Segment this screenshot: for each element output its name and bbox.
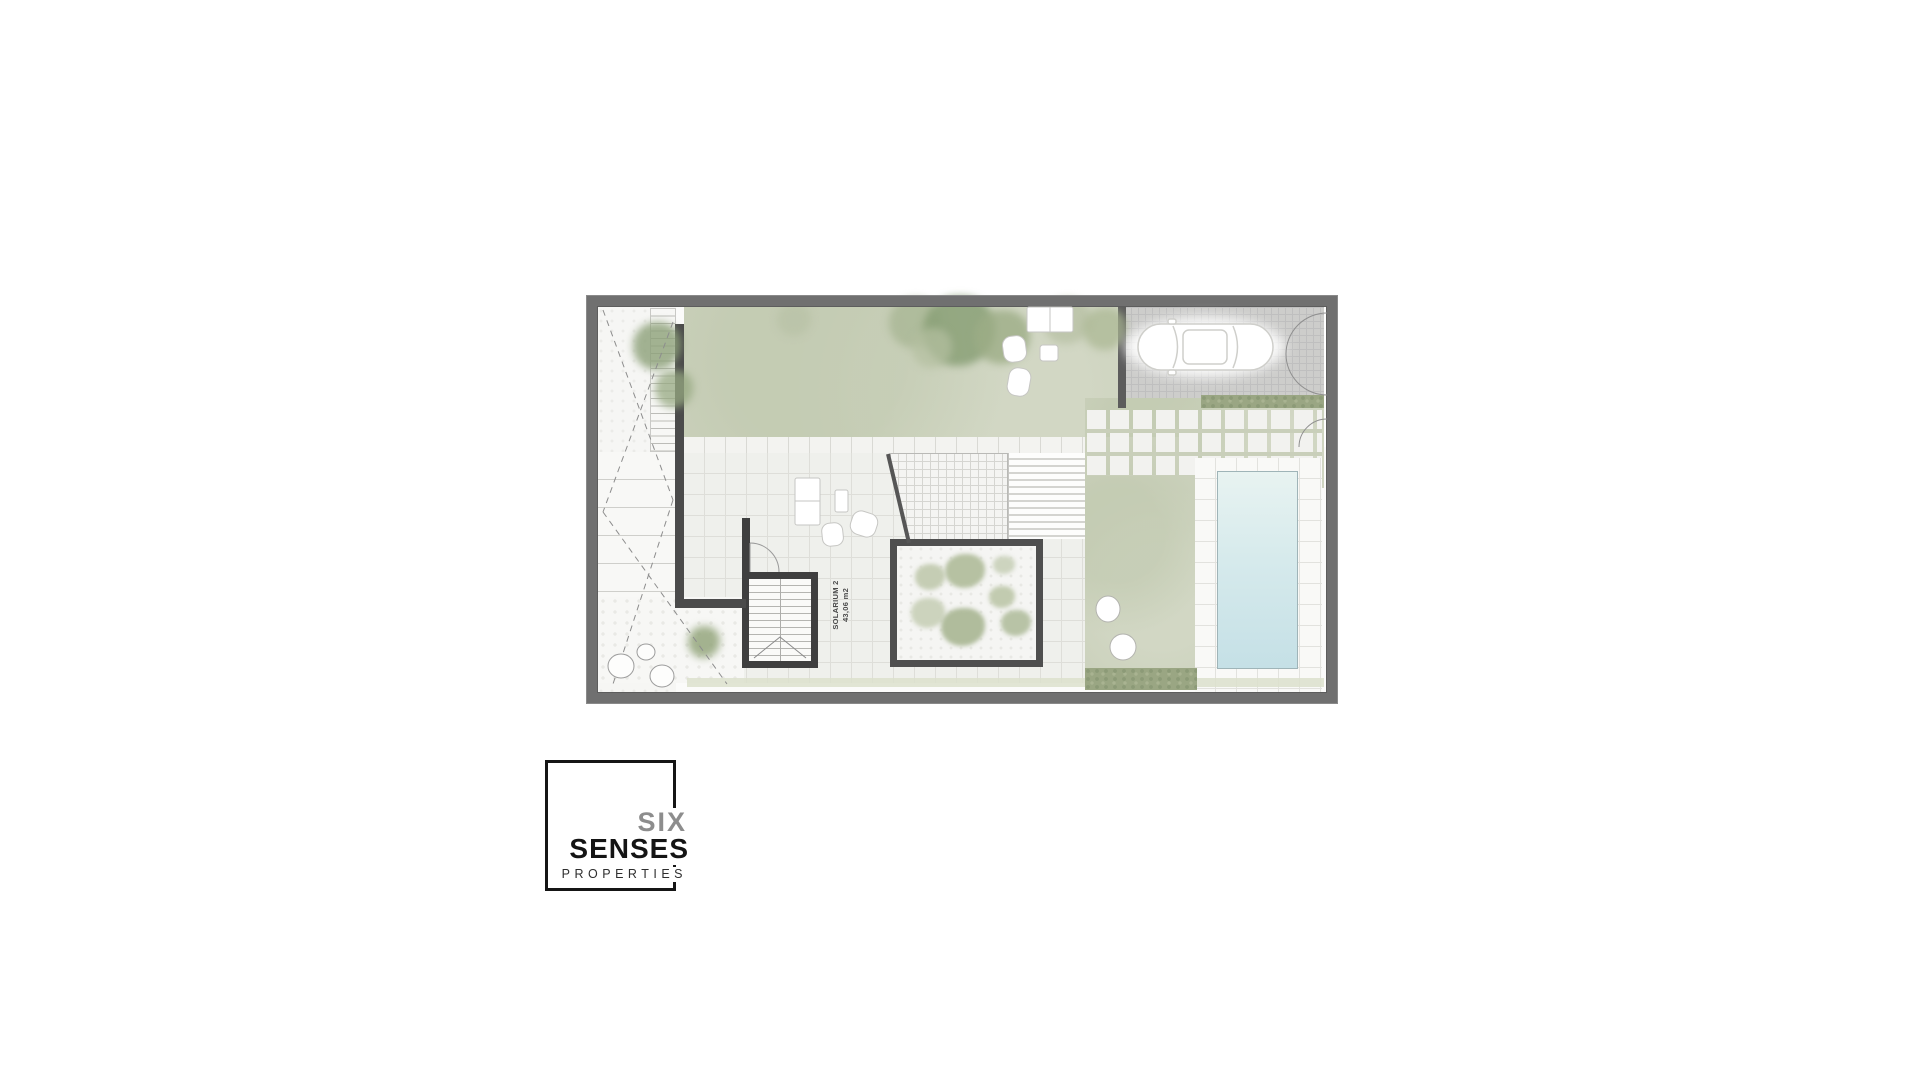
boundary-wall xyxy=(587,296,1337,703)
room-area: 43,06 m2 xyxy=(841,575,851,635)
page: SOLARIUM 2 43,06 m2 SIX SENSES PROPERTIE… xyxy=(0,0,1920,1080)
solarium-label: SOLARIUM 2 43,06 m2 xyxy=(831,575,861,635)
room-name: SOLARIUM 2 xyxy=(831,575,841,635)
brand-logo: SIX SENSES PROPERTIES xyxy=(545,758,697,898)
floor-plan: SOLARIUM 2 43,06 m2 xyxy=(587,296,1337,703)
logo-word-properties: PROPERTIES xyxy=(554,867,687,882)
logo-word-senses: SENSES xyxy=(561,834,689,865)
